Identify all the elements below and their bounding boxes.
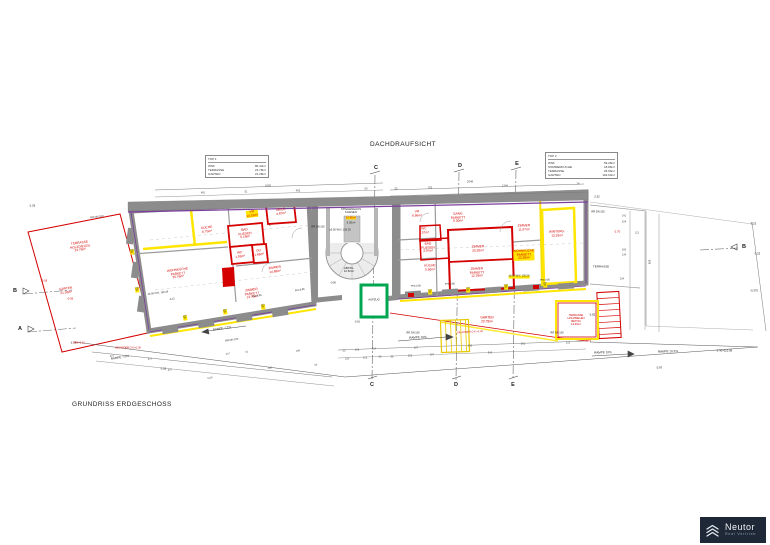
plan-label: 100 94 xyxy=(223,309,227,314)
plan-label: WC 1.59m² xyxy=(235,251,246,259)
plan-label: ZIMMER 11.87m² xyxy=(518,224,531,232)
plan-label: 60 xyxy=(379,357,382,360)
plan-label: 455 xyxy=(296,191,300,194)
plan-label: PH=0.85 xyxy=(295,289,305,293)
plan-label: ZIMMER 14.88m² xyxy=(268,266,281,275)
plan-label: WC 1.57m² xyxy=(419,227,429,234)
plan-label: RR DN 100 xyxy=(550,333,563,336)
plan-label: GARTEN 21.28m² xyxy=(59,287,73,296)
neutor-logo: Neutor Real Vertrieb xyxy=(700,517,766,543)
plan-label: -3.23 xyxy=(750,222,756,225)
area-table-top1: TOP 1 WNF 86.44m² TERRASSE 23.78m² GARTE… xyxy=(205,155,269,178)
plan-label: 1119 xyxy=(207,377,213,381)
plan-label: VR 14.15m² xyxy=(246,210,258,219)
plan-label: RAMPE 10.2% xyxy=(658,350,678,354)
plan-label: 106 xyxy=(355,350,359,353)
plan-label: 100 94 xyxy=(130,249,134,254)
plan-label: RR DN 100 xyxy=(225,339,239,344)
plan-label: 24 xyxy=(577,184,580,187)
plan-label: ±0.00 W.N. 126.26 xyxy=(329,230,350,233)
plan-label: 100 94 xyxy=(135,287,139,292)
area-table-top1-header: TOP 1 xyxy=(208,157,266,163)
area-value: 21.28m² xyxy=(255,172,266,176)
area-row: GARTEN 102.64m² xyxy=(548,173,615,177)
plan-label: ZIMMER PARKETT 12.29m² xyxy=(470,267,485,278)
plan-label: -2.70 xyxy=(614,230,620,233)
plan-label: 180 xyxy=(622,250,626,253)
plan-label: 473 xyxy=(148,358,153,361)
plan-label: KÜCHE 5.60m² xyxy=(424,264,435,272)
plan-label: -0.375 xyxy=(750,289,758,292)
plan-label: 14.86m² xyxy=(346,216,356,219)
floorplan-sheet: DACHDRAUFSICHT GRUNDRISS ERDGESCHOSS TOP… xyxy=(0,0,770,545)
section-marker-d: D xyxy=(454,382,458,388)
plan-label: 703 xyxy=(428,188,432,191)
plan-label: 100 94 xyxy=(261,304,265,309)
plan-label: BOK=1.10 xyxy=(73,343,85,346)
section-marker-b: B xyxy=(13,288,17,294)
plan-label: 100 94 xyxy=(183,315,187,320)
plan-label: 54 xyxy=(314,364,317,367)
plan-label: 561 xyxy=(521,344,525,347)
plan-label: 214 xyxy=(372,349,376,352)
plan-label: 104 xyxy=(622,222,626,225)
plan-label: VR 6.86m² xyxy=(412,210,422,217)
logo-tagline: Real Vertrieb xyxy=(725,533,756,537)
plan-label: 2048 xyxy=(467,180,473,183)
plan-label: RR DN 100 xyxy=(591,212,604,215)
drawing-title: DACHDRAUFSICHT xyxy=(370,141,436,148)
plan-label: -2.82 xyxy=(589,313,595,316)
plan-label: WOHNKÜCHE PARKETT 23.55m² xyxy=(513,249,535,260)
plan-label: -1.02 xyxy=(160,367,166,370)
plan-label: TERRASSE HOLZDIELEN BETON 12.93m² xyxy=(568,314,585,326)
section-marker-c: C xyxy=(370,382,374,388)
plan-label: 59 xyxy=(365,189,368,192)
plan-label: 448 xyxy=(268,367,273,370)
plan-label: 543 xyxy=(488,353,492,356)
area-label: GARTEN xyxy=(208,172,220,176)
plan-label: DIELE 4.87m² xyxy=(276,208,287,216)
plan-label: 237 xyxy=(226,353,231,356)
plan-label: ±0.00 W.N. 126.26 xyxy=(148,291,169,296)
plan-label: 25 xyxy=(395,189,398,192)
plan-label: 481 xyxy=(201,193,205,196)
section-marker-d: D xyxy=(458,163,462,169)
plan-label: 50 xyxy=(343,351,346,354)
plan-caption: GRUNDRISS ERDGESCHOSS xyxy=(72,401,172,408)
plan-label: 2.52 xyxy=(594,195,599,198)
plan-label: 475 xyxy=(168,369,173,372)
plan-label: 898 xyxy=(647,260,650,264)
plan-label: 100 94 xyxy=(466,287,470,292)
plan-label: PH=0.85 xyxy=(411,285,421,288)
plan-label: BAD FLIESEN 5.18m² xyxy=(238,228,253,240)
plan-label: 121 xyxy=(635,233,639,236)
plan-label: -1.29 xyxy=(29,204,35,207)
plan-label: 1244 xyxy=(502,186,508,189)
plan-label: PH=0.85 xyxy=(445,283,455,286)
plan-label: 187 xyxy=(414,348,418,351)
plan-label: AUFZUG xyxy=(368,298,380,301)
plan-label: RR DN 100 xyxy=(90,216,104,220)
plan-label: 9.05m² xyxy=(347,221,356,224)
plan-label: RR DN 100 xyxy=(311,227,324,230)
plan-label: WINTERG. 13.33m² xyxy=(549,230,565,238)
plan-label: 343 xyxy=(468,346,472,349)
plan-label: -0.91 xyxy=(354,322,360,325)
plan-label: 207 xyxy=(430,355,434,358)
plan-label: GANG PARKETT 8.30m² xyxy=(451,212,466,223)
plan-label: RR DN 100 xyxy=(406,333,419,336)
section-marker-b: B xyxy=(742,244,746,250)
plan-label: -0.18 xyxy=(41,279,47,282)
area-label: GARTEN xyxy=(548,173,560,177)
plan-label: GELÄNDER O.K.=1.00 xyxy=(115,348,141,351)
plan-label: ZIMMER 20.30m² xyxy=(472,245,485,253)
plan-labels-layer: KÜCHE 6.75m²VR 14.15m²DIELE 4.87m²BAD FL… xyxy=(0,0,770,545)
plan-label: GARTEN 20.75m² xyxy=(480,316,493,323)
plan-label: 332 xyxy=(566,343,570,346)
plan-label: 100 94 xyxy=(428,289,432,294)
plan-label: 1050 xyxy=(265,184,271,187)
area-row: GARTEN 21.28m² xyxy=(208,172,266,176)
plan-label: -0.90 xyxy=(330,283,336,286)
plan-label: -0.12 xyxy=(169,298,175,301)
plan-label: 123 xyxy=(363,358,367,361)
plan-label: RAMPE 10% xyxy=(409,336,427,340)
plan-label: 51 xyxy=(245,351,248,354)
plan-label: -3.23 xyxy=(754,252,760,255)
plan-label: 134 xyxy=(622,255,626,258)
plan-label: 98 xyxy=(391,357,394,360)
section-marker-e: E xyxy=(511,382,515,388)
plan-label: 203 xyxy=(408,356,412,359)
plan-label: WOHNKÜCHE PARKETT 35.76m² xyxy=(167,267,189,280)
plan-label: GELÄNDER O.K.=1.00 xyxy=(457,331,483,335)
plan-label: 100 94 xyxy=(504,284,508,289)
section-marker-a: A xyxy=(18,326,22,332)
plan-label: -0.81 xyxy=(585,339,591,342)
plan-label: BAD FLIESEN 3.97m² xyxy=(421,242,435,253)
plan-label: 100 94 xyxy=(543,282,547,287)
plan-label: ABSTG. 10.52m² xyxy=(344,267,354,273)
plan-label: RAMPE 10% xyxy=(594,351,612,355)
plan-label: TERRASSE xyxy=(593,265,609,268)
plan-label: 51 xyxy=(245,192,248,195)
plan-label: -0.05 xyxy=(67,297,73,300)
section-marker-c: C xyxy=(374,165,378,171)
plan-label: 119 xyxy=(345,359,349,362)
plan-label: 104 xyxy=(620,279,624,282)
plan-label: 199 xyxy=(296,350,301,353)
plan-label: KÜCHE 6.75m² xyxy=(201,226,213,234)
plan-label: -3.40=112.89 xyxy=(716,349,732,352)
plan-label: -2.87 xyxy=(656,366,662,369)
plan-label: RAMPE 7.2% xyxy=(213,326,232,332)
area-table-top2: TOP 2 WNF 59.28m² SOMMERKÜCHE 18.86m² TE… xyxy=(545,152,618,179)
plan-label: ±0.00 W.N. 126.26 xyxy=(509,276,530,279)
plan-label: 141 xyxy=(622,216,626,219)
area-table-top2-header: TOP 2 xyxy=(548,154,615,160)
plan-label: DU 1.68m² xyxy=(254,249,265,257)
section-marker-e: E xyxy=(515,161,519,167)
area-value: 102.64m² xyxy=(602,173,615,177)
neutor-logo-icon xyxy=(705,523,720,538)
plan-label: STIEGENHAUS FLIESEN xyxy=(341,208,361,214)
plan-label: TERRASSE HOLZDIELEN 23.78m² xyxy=(69,240,90,253)
